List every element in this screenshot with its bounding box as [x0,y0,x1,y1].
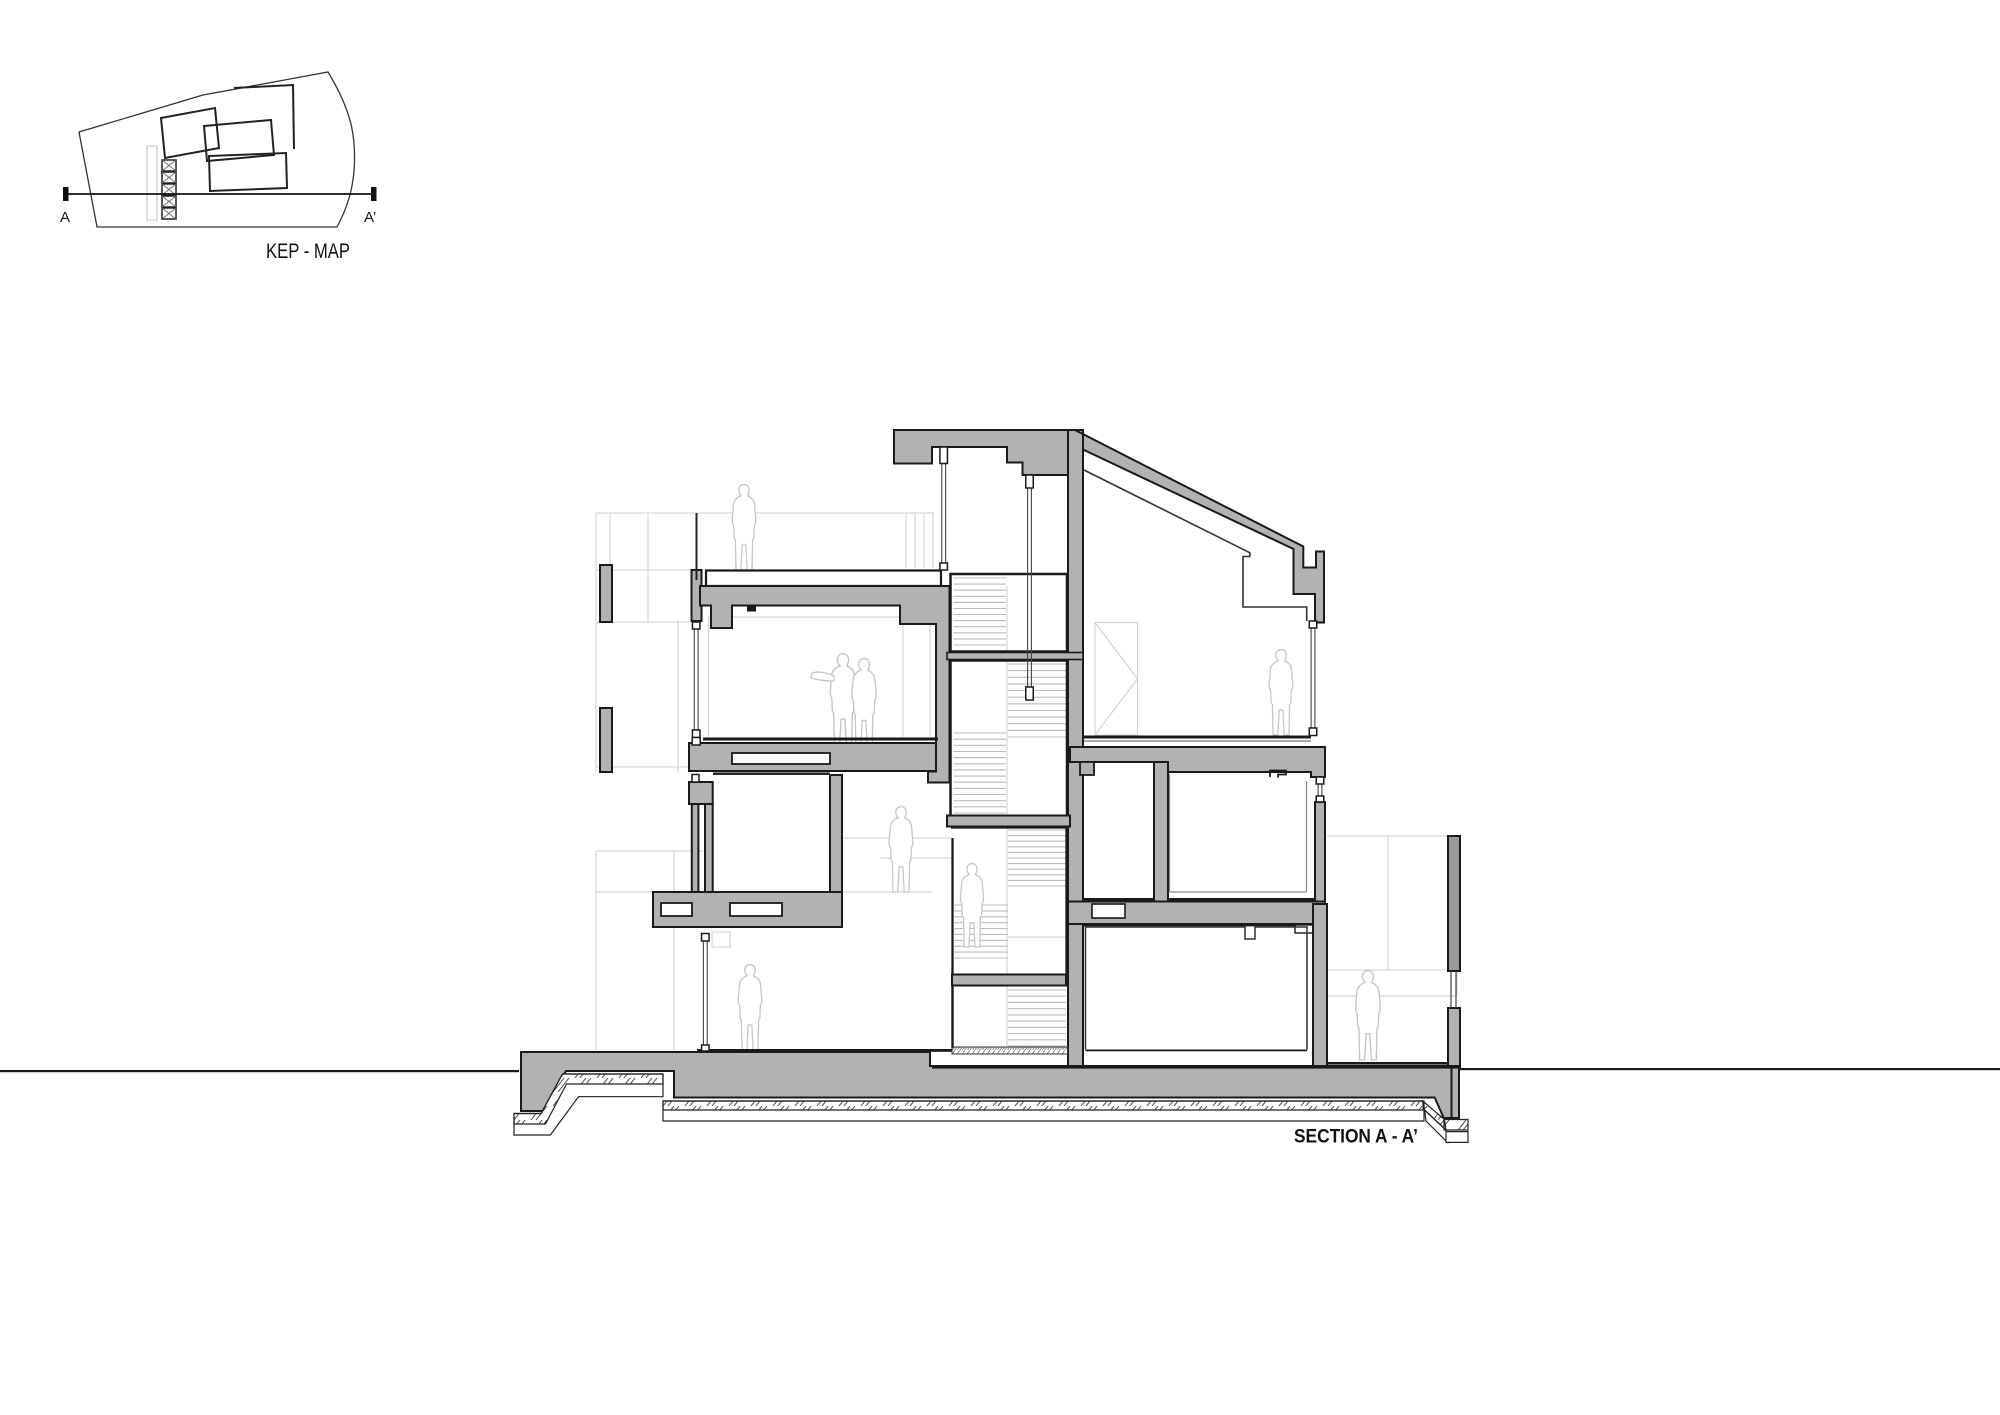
svg-text:SECTION A - A’: SECTION A - A’ [1294,1127,1418,1148]
svg-text:A’: A’ [364,209,376,226]
svg-text:KEP - MAP: KEP - MAP [266,240,350,263]
svg-text:A: A [60,209,70,226]
